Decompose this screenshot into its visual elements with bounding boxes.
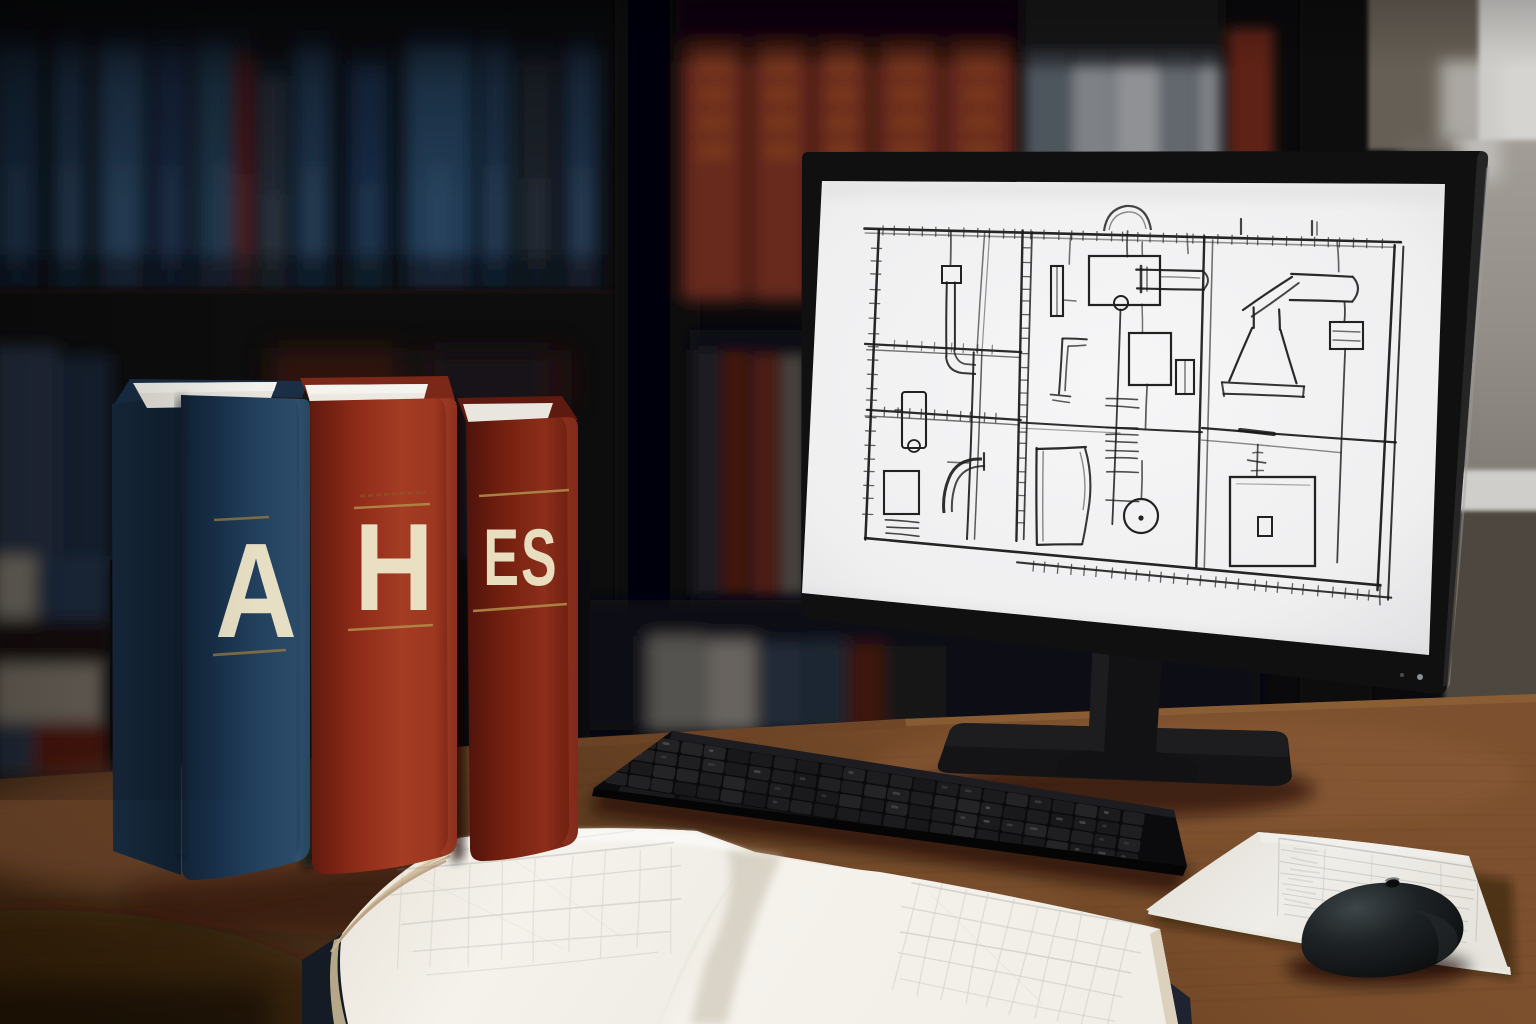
svg-text:H: H [354, 498, 434, 636]
svg-text:ES: ES [483, 512, 558, 603]
